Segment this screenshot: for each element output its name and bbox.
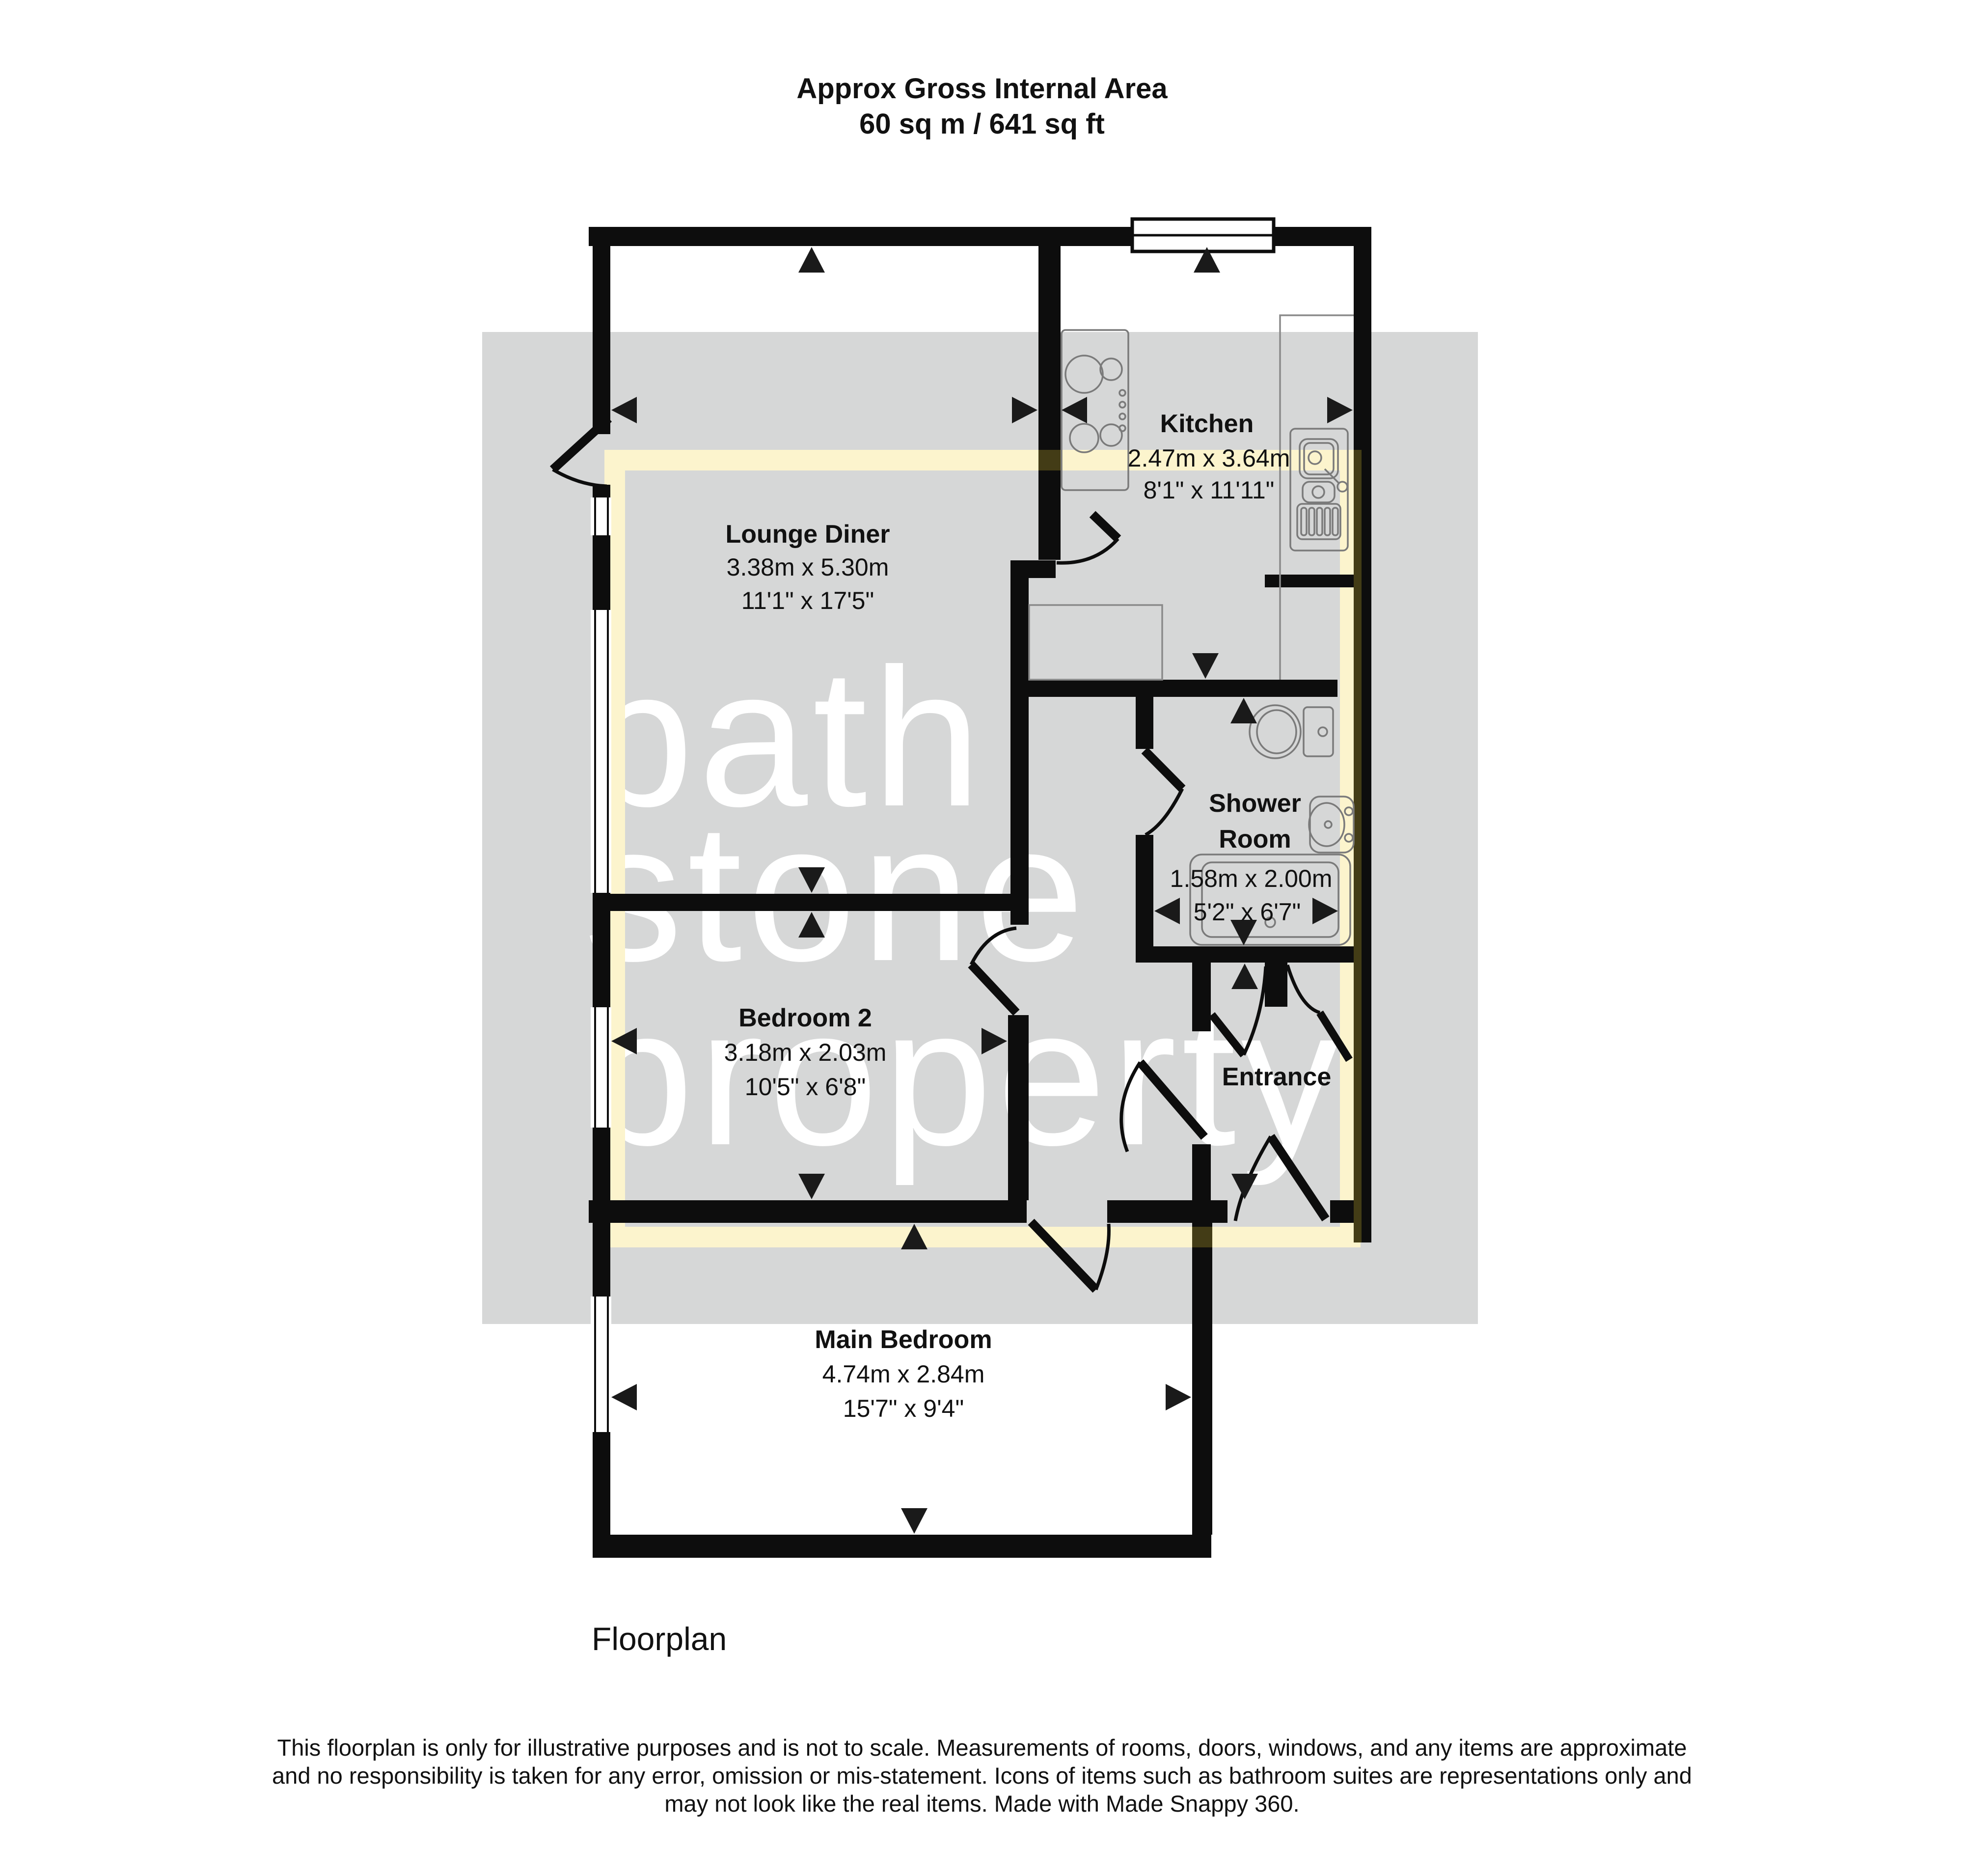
window-left-1 <box>591 497 611 535</box>
wall-mainbed-right <box>1192 1223 1212 1535</box>
room-name-kitchen: Kitchen <box>1160 410 1254 438</box>
wall-left-1 <box>593 227 610 434</box>
wall-entrance-stub-2 <box>1192 1144 1211 1200</box>
disclaimer-line-2: and no responsibility is taken for any e… <box>272 1763 1692 1789</box>
room-entrance: Entrance <box>1222 1063 1332 1091</box>
window-left-3 <box>591 1007 611 1128</box>
room-name-entrance: Entrance <box>1222 1063 1332 1091</box>
room-imperial-shower: 5'2" x 6'7" <box>1194 898 1301 926</box>
window-left-4 <box>591 1297 611 1432</box>
wall-corridor-lower <box>1008 1015 1029 1200</box>
floorplan-canvas: Approx Gross Internal Area 60 sq m / 641… <box>0 0 1964 1876</box>
disclaimer-line-3: may not look like the real items. Made w… <box>664 1791 1299 1817</box>
overlap-right-wall <box>1354 450 1362 1242</box>
wall-kitchen-stub <box>1010 560 1056 578</box>
room-lounge: Lounge Diner 3.38m x 5.30m 11'1" x 17'5" <box>725 520 890 614</box>
wall-lower-1 <box>589 1200 1027 1223</box>
window-top-kitchen <box>1132 219 1274 251</box>
wall-left-3 <box>593 535 610 610</box>
wall-entrance-stub-1 <box>1192 963 1211 1031</box>
room-metric-lounge: 3.38m x 5.30m <box>727 553 889 581</box>
room-imperial-bedroom2: 10'5" x 6'8" <box>745 1073 866 1101</box>
wall-cupboard-stub <box>1265 963 1287 1007</box>
room-bedroom2: Bedroom 2 3.18m x 2.03m 10'5" x 6'8" <box>724 1004 887 1101</box>
room-metric-kitchen: 2.47m x 3.64m <box>1128 444 1290 472</box>
room-name-mainbed: Main Bedroom <box>815 1325 992 1354</box>
page-title: Approx Gross Internal Area <box>796 73 1168 105</box>
room-name-shower-2: Room <box>1219 825 1291 854</box>
room-metric-mainbed: 4.74m x 2.84m <box>822 1360 985 1388</box>
wall-shower-top <box>1010 680 1337 697</box>
room-imperial-kitchen: 8'1" x 11'11" <box>1144 476 1275 504</box>
page-subtitle: 60 sq m / 641 sq ft <box>859 108 1105 140</box>
wall-lower-3 <box>1330 1200 1371 1223</box>
room-imperial-lounge: 11'1" x 17'5" <box>741 587 874 614</box>
room-metric-shower: 1.58m x 2.00m <box>1170 865 1333 892</box>
wall-shower-left-1 <box>1136 697 1153 749</box>
wall-bottom <box>593 1535 1211 1558</box>
window-left-2 <box>591 610 611 893</box>
room-name-lounge: Lounge Diner <box>725 520 890 549</box>
floorplan-page: Approx Gross Internal Area 60 sq m / 641… <box>0 0 1964 1876</box>
wall-shower-bottom <box>1136 946 1354 963</box>
wall-kitchen-divider <box>1038 227 1061 560</box>
wall-shower-left-2 <box>1136 835 1153 946</box>
room-imperial-mainbed: 15'7" x 9'4" <box>843 1395 964 1422</box>
room-name-bedroom2: Bedroom 2 <box>738 1004 872 1032</box>
wall-lower-2 <box>1107 1200 1227 1223</box>
overlap-divider <box>1038 450 1061 470</box>
room-metric-bedroom2: 3.18m x 2.03m <box>724 1039 887 1066</box>
room-name-shower-1: Shower <box>1209 789 1301 818</box>
wall-bedroom2-top <box>593 894 1029 911</box>
disclaimer-line-1: This floorplan is only for illustrative … <box>277 1735 1687 1761</box>
overlap-mainbed-wall <box>1192 1227 1212 1247</box>
wall-corridor-upper <box>1010 578 1029 925</box>
floorplan-label: Floorplan <box>592 1621 727 1657</box>
